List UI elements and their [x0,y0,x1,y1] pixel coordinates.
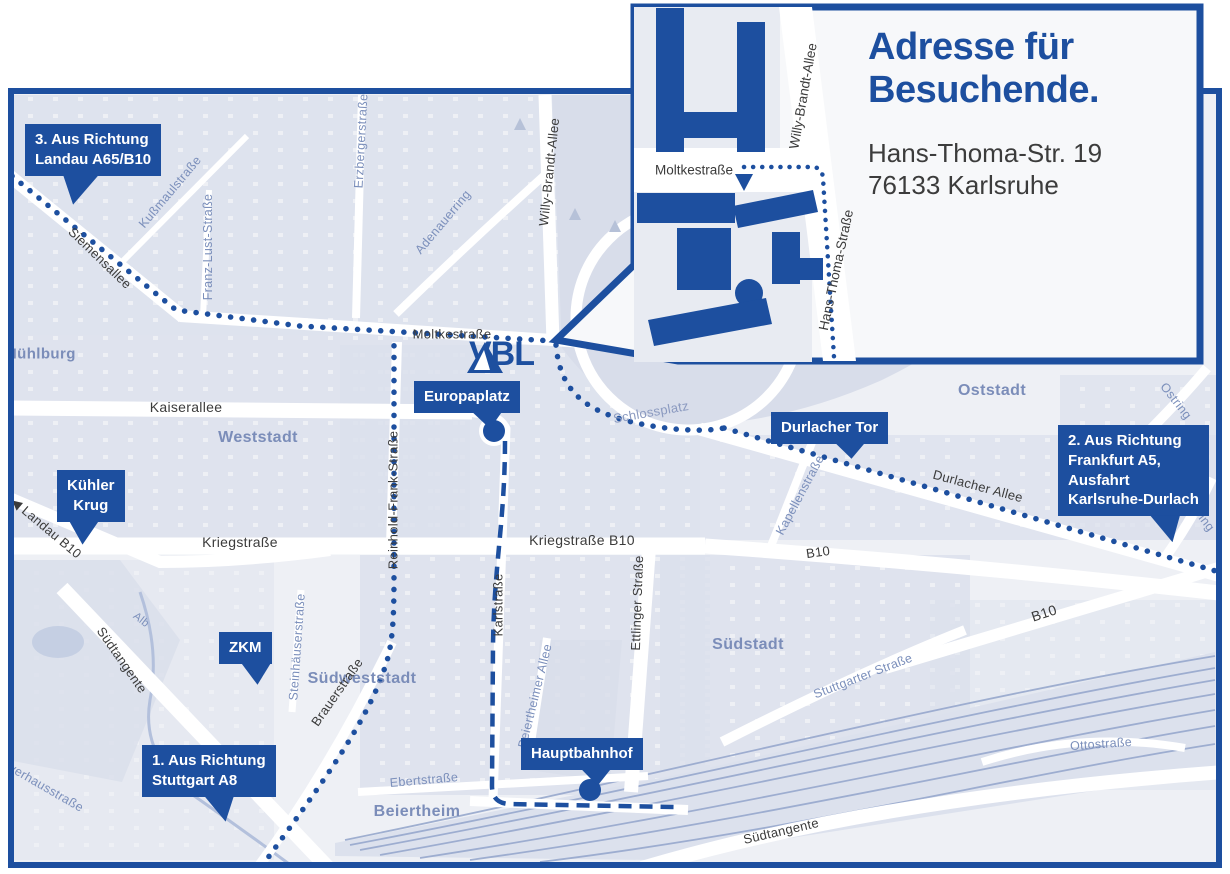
callout-durlacher-tor: Durlacher Tor [771,412,888,444]
vbl-logo: VBL [466,341,534,369]
callout-kuehler-krug-line1: Kühler [67,476,115,496]
callout-stuttgart-line1: 1. Aus Richtung [152,751,266,771]
street-label-kriegstrasse: Kriegstraße [202,534,278,550]
callout-kuehler-krug: Kühler Krug [57,470,125,522]
callout-frankfurt-line2: Frankfurt A5, [1068,451,1199,471]
district-muehlburg: Mühlburg [8,346,76,363]
main-map: Mühlburg Weststadt Oststadt Südstadt Süd… [8,88,1222,868]
callout-frankfurt-line3: Ausfahrt [1068,471,1199,491]
callout-zkm: ZKM [219,632,272,664]
street-label-franz-lust-strasse: Franz-Lust-Straße [201,194,215,301]
callout-zkm-label: ZKM [229,638,262,658]
callout-kuehler-krug-line2: Krug [67,496,115,516]
callout-hauptbahnhof-label: Hauptbahnhof [531,744,633,764]
schloss-building [640,248,738,268]
callout-landau-line2: Landau A65/B10 [35,150,151,170]
vbl-triangle-icon [466,341,504,374]
callout-frankfurt: 2. Aus Richtung Frankfurt A5, Ausfahrt K… [1058,425,1209,516]
callout-stuttgart-line2: Stuttgart A8 [152,771,266,791]
inset-title-line1: Adresse für [868,26,1099,69]
callout-durlacher-tor-label: Durlacher Tor [781,418,878,438]
schlossgarten-park [552,95,1040,425]
callout-frankfurt-line1: 2. Aus Richtung [1068,431,1199,451]
lake [32,626,84,658]
street-label-reinhold-frank-strasse: Reinhold-Frank-Straße [386,431,401,570]
street-label-kaiserallee: Kaiserallee [150,399,223,415]
callout-frankfurt-line4: Karlsruhe-Durlach [1068,490,1199,510]
callout-landau: 3. Aus Richtung Landau A65/B10 [25,124,161,176]
district-suedweststadt: Südweststadt [308,670,417,688]
district-beiertheim: Beiertheim [374,803,461,821]
district-oststadt: Oststadt [958,382,1026,400]
callout-hauptbahnhof: Hauptbahnhof [521,738,643,770]
street-label-kriegstrasse-b10: Kriegstraße B10 [529,532,635,548]
district-suedstadt: Südstadt [712,636,784,654]
city-map-canvas: Mühlburg Weststadt Oststadt Südstadt Süd… [0,0,1230,874]
district-weststadt: Weststadt [218,429,298,447]
street-label-karlstrasse: Karlstraße [491,574,506,637]
callout-europaplatz-label: Europaplatz [424,387,510,407]
callout-landau-line1: 3. Aus Richtung [35,130,151,150]
callout-stuttgart: 1. Aus Richtung Stuttgart A8 [142,745,276,797]
callout-europaplatz: Europaplatz [414,381,520,413]
